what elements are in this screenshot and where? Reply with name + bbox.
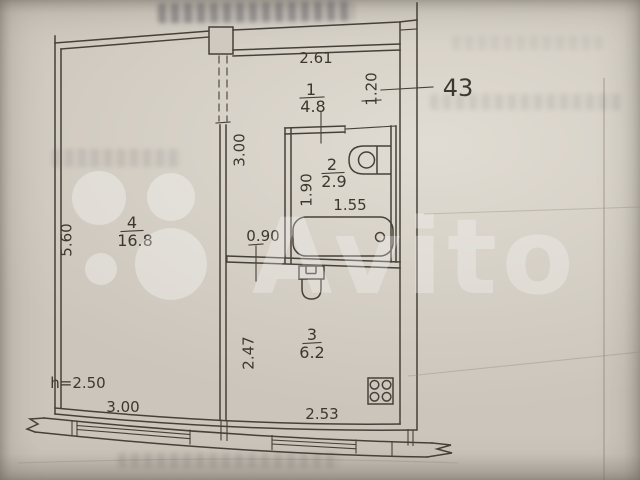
crease-diagonal-right	[408, 352, 640, 376]
wall-column	[209, 27, 233, 54]
avito-logo-circle-2	[147, 173, 195, 221]
dim-kitchen-length: 2.47	[239, 336, 257, 369]
avito-logo-circle-4	[135, 228, 207, 300]
floor-plan-drawing: 2.61 1.20 43 3.00 1 4.8 2 2.9 1.90 1.55 …	[0, 0, 640, 480]
avito-watermark-text: Avito	[252, 196, 578, 318]
top-left-wall-inner	[61, 37, 209, 49]
crease-bottom	[18, 459, 458, 463]
room-hall-area: 4.8	[300, 97, 325, 116]
right-wall-junction	[400, 29, 417, 30]
balcony-connector-center	[221, 420, 227, 441]
dim-living-width: 3.00	[106, 398, 139, 416]
room-kitchen-number: 3	[307, 325, 317, 344]
dim-hall-width-top: 2.61	[299, 49, 332, 67]
dim-living-length: 5.60	[57, 223, 75, 256]
bathroom-top-wall-b	[285, 132, 345, 134]
watermark: Avito	[72, 171, 578, 318]
bathroom-top-wall-a	[285, 126, 345, 128]
top-left-wall-outer	[55, 31, 209, 43]
sink	[349, 146, 391, 174]
room-bathroom-area: 2.9	[321, 172, 346, 191]
balcony-break-mark-left	[27, 418, 44, 432]
apartment-number: 43	[443, 74, 474, 102]
avito-logo-circle-3	[85, 253, 117, 285]
room-living-number: 4	[127, 213, 137, 232]
dim-kitchen-width: 2.53	[305, 405, 338, 423]
balcony-break-mark-right	[427, 443, 452, 457]
room-kitchen-area: 6.2	[299, 343, 324, 362]
scanned-floor-plan-photo: 2.61 1.20 43 3.00 1 4.8 2 2.9 1.90 1.55 …	[0, 0, 640, 480]
dim-hall-length: 3.00	[230, 133, 248, 166]
stove	[368, 378, 393, 404]
avito-logo-circle-1	[72, 171, 126, 225]
ceiling-height-label: h=2.50	[50, 374, 105, 392]
balcony-bottom-edge	[35, 432, 427, 457]
balcony-glazing-b1	[272, 440, 356, 445]
hall-opening-tick	[216, 122, 230, 123]
balcony-glazing-b2	[272, 444, 356, 449]
bathroom-door-threshold	[345, 126, 396, 129]
top-right-wall	[233, 20, 417, 30]
apartment-number-leader	[381, 87, 433, 90]
dim-entry-depth: 1.20	[362, 72, 380, 105]
